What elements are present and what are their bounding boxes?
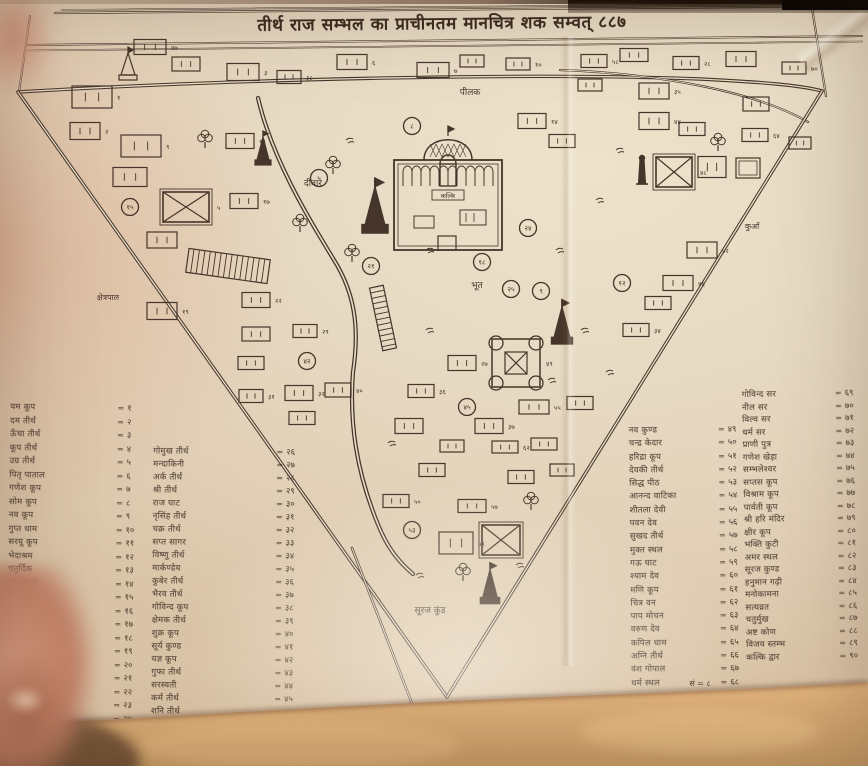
equals-sign: = [116,485,123,494]
equals-sign: = [719,544,726,553]
legend-row: शनि तीर्थ=४६ [151,705,301,719]
equals-sign: = [274,681,281,690]
tirtha-name: गणेश खेड़ा [743,450,833,463]
equals-sign: = [719,571,726,580]
tirtha-number: ३८ [285,603,302,614]
tirtha-name: धर्म स्थल [631,676,717,688]
tirtha-number: ८० [847,524,864,535]
tirtha-name: गऊ घाट [630,557,716,569]
equals-sign: = [275,564,282,573]
tirtha-name: गोमुख तीर्थ [153,445,273,457]
tirtha-name: सरस्वती [151,679,271,691]
tirtha-name: सत्यव्रत [745,600,835,613]
equals-sign: = [837,501,844,510]
tirtha-number: ८१ [847,537,864,548]
equals-sign: = [835,388,842,397]
tirtha-name: पितृ पाताल [9,469,113,481]
legend-row: गऊ घाट=५९ [630,556,746,571]
equals-sign: = [718,438,725,447]
legend-row: नृसिंह तीर्थ=३१ [153,510,303,524]
tirtha-name: चंदू तीर्थ [7,644,111,656]
tirtha-name: शीतला देवी [629,503,715,515]
tirtha-name: शुक्र कूप [152,627,272,639]
equals-sign: = [114,620,121,629]
tirtha-name: अर्क तीर्थ [153,471,273,483]
equals-sign: = [115,606,122,615]
equals-sign: = [275,577,282,586]
tirtha-number: ४४ [284,681,301,692]
equals-sign: = [116,498,123,507]
tirtha-number: १३ [125,565,142,576]
tirtha-name: नव कूप [9,509,113,521]
equals-sign: = [275,590,282,599]
tirtha-name: हरिद्रा कूप [629,450,715,462]
equals-sign: = [718,425,725,434]
equals-sign: = [718,451,725,460]
equals-sign: = [836,426,843,435]
equals-sign: = [275,668,282,677]
tirtha-number: ४१ [285,642,302,653]
tirtha-name: विश्राम कूप [743,487,833,500]
equals-sign: = [114,687,121,696]
tirtha-number: ६६ [730,649,747,660]
tirtha-number: १४ [125,578,142,589]
equals-sign: = [114,633,121,642]
tirtha-name: विष्णु तीर्थ [152,549,272,561]
tirtha-number: ३१ [286,512,303,523]
tirtha-number: २४ [123,713,140,724]
tirtha-number: १६ [124,605,141,616]
tirtha-number: ८९ [849,637,866,648]
tirtha-name: वंश गोपाल [631,663,717,675]
tirtha-number: ४६ [284,707,301,718]
tirtha-name: सुखद तीर्थ [630,530,716,542]
tirtha-name: गुप्त धाम [9,523,113,535]
equals-sign: = [838,588,845,597]
tirtha-number: २६ [286,447,303,458]
tirtha-name: श्री हरि मंदिर [744,512,834,525]
tirtha-name: गोविन्द कूप [152,601,272,613]
tirtha-name: कपिल धाम [631,636,717,648]
equals-sign: = [719,518,726,527]
tirtha-name: अवन्तिका [8,590,112,602]
equals-sign: = [115,579,122,588]
legend-row: चित्र वन=६२ [630,596,746,611]
legend-row: श्री तीर्थ=२९ [153,484,303,498]
tirtha-number: २९ [286,486,303,497]
tirtha-name: नील सर [742,400,832,413]
tirtha-name: उत्तम स्थल [7,658,111,670]
equals-sign: = [720,624,727,633]
tirtha-number: ३२ [286,525,303,536]
legend-row: नव कुण्ड=४९ [629,423,745,438]
tirtha-name: सूरज कुण्ड [745,562,835,575]
tirtha-name: नारद कूप [6,685,110,697]
tirtha-name: मुख तीर्थ [151,718,271,730]
tirtha-name: श्रद्धा धाम [6,712,110,724]
tirtha-number: ६१ [729,583,746,594]
tirtha-name: पवन देव [630,517,716,529]
tirtha-number: ८५ [848,587,865,598]
equals-sign: = [836,463,843,472]
legend-row: भारती तीर्थ=४८ [151,731,301,745]
tirtha-name: क्षीर कूप [744,525,834,538]
tirtha-name: गुफा तीर्थ [151,666,271,678]
equals-sign: = [839,601,846,610]
tirtha-number: ९० [849,649,866,660]
tirtha-number: ७७ [846,487,863,498]
equals-sign: = [718,464,725,473]
equals-sign: = [114,660,121,669]
tirtha-number: ७६ [846,474,863,485]
tirtha-name: कर्म तीर्थ [151,692,271,704]
equals-sign: = [117,417,124,426]
tirtha-number: ८८ [849,624,866,635]
legend-row: अग्नि तीर्थ=६६ [631,649,747,664]
equals-sign: = [838,563,845,572]
tirtha-name: वह कूप [6,671,110,683]
tirtha-name: सप्त सागर [152,536,272,548]
tirtha-name: विल्व सर [742,412,832,425]
equals-sign: = [276,460,283,469]
tirtha-number: ३४ [285,551,302,562]
equals-sign: = [276,499,283,508]
legend-row: यज्ञ कूप=४२ [151,653,301,667]
tirtha-number: २ [127,416,144,427]
legend-row: गुफा तीर्थ=४३ [151,666,301,680]
equals-sign: = [274,707,281,716]
tirtha-number: ७४ [846,449,863,460]
tirtha-number: ११ [125,538,142,549]
tirtha-number: ३३ [285,538,302,549]
legend-row: मन्दाकिनी=२७ [153,458,303,472]
equals-sign: = [718,478,725,487]
legend-row: पाप मोचन=६३ [631,610,747,625]
legend-row: वरुण देव=६४ [631,623,747,638]
tirtha-name: भद्रक तीर्थ [6,725,110,737]
equals-sign: = [113,728,120,737]
map-title: तीर्थ राज सम्भल का प्राचीनतम मानचित्र शक… [257,12,626,36]
legend-row: कल्कि द्वार=९० [746,649,866,664]
tirtha-name: यम कूप [10,401,114,413]
equals-sign: = [835,401,842,410]
tirtha-name: नव कुण्ड [629,424,715,436]
equals-sign: = [113,714,120,723]
equals-sign: = [114,647,121,656]
tirtha-number: ७८ [847,499,864,510]
equals-sign: = [719,558,726,567]
equals-sign: = [719,491,726,500]
tirtha-number: ३७ [285,590,302,601]
tirtha-number: ९ [126,511,143,522]
equals-sign: = [114,674,121,683]
tirtha-name: अष्ट कोण [746,625,836,638]
tirtha-name: सप्तस कूप [743,475,833,488]
tirtha-name: अशोक कूप [6,698,110,710]
equals-sign: = [720,597,727,606]
tirtha-number: ६९ [845,387,862,398]
equals-sign: = [274,720,281,729]
tirtha-name: धर्म सर [742,425,832,438]
legend-row: मुख तीर्थ=४७ [151,718,301,732]
equals-sign: = [276,473,283,482]
tirtha-name: भारती तीर्थ [151,731,271,743]
equals-sign: = [115,566,122,575]
legend-row: मणि कूप=६१ [630,583,746,598]
equals-sign: = [838,551,845,560]
tirtha-number: ४५ [284,694,301,705]
tirtha-number: ३५ [285,564,302,575]
tirtha-number: ७३ [845,437,862,448]
tirtha-number: ३९ [285,616,302,627]
equals-sign: = [275,629,282,638]
legend-row: शीतला देवी=५५ [629,503,745,518]
legend-row: वंश गोपाल=६७ [631,663,747,678]
equals-sign: = [276,486,283,495]
tirtha-name: पाप मोचन [631,610,717,622]
tirtha-number: १५ [125,592,142,603]
equals-sign: = [276,512,283,521]
tirtha-name: ऊँचा तीर्थ [10,428,114,440]
tirtha-name: उग्र तीर्थ [9,455,113,467]
tirtha-name: कुबेर तीर्थ [152,575,272,587]
tirtha-number: ४३ [284,668,301,679]
tirtha-number: ८४ [848,574,865,585]
tirtha-name: गणेश कूप [9,482,113,494]
equals-sign: = [719,504,726,513]
equals-sign: = [720,651,727,660]
tirtha-number: ५९ [729,556,746,567]
tirtha-name: नौवह फल [7,631,111,643]
photo-of-old-map: ४७१३३८६७१०५८२८७०३५२९१३५१७१५२२१९क्षेत्रपा… [0,0,868,766]
tirtha-name: आनन्द वाटिका [629,490,715,502]
tirtha-name: वरुण देव [631,623,717,635]
tirtha-name: क्षेमक तीर्थ [152,614,272,626]
tirtha-number: ६८ [730,676,747,687]
tirtha-number: ६ [126,470,143,481]
tirtha-name: भेदाश्रम [8,550,112,562]
tirtha-number: ४० [285,629,302,640]
tirtha-name: सम्भलेश्वर [743,462,833,475]
equals-sign: = [118,404,125,413]
tirtha-number: २५ [123,727,140,738]
legend-row: मार्कण्डेय=३५ [152,562,302,576]
equals-sign: = [276,538,283,547]
legend-row: धर्म स्थल=६८ [631,676,747,691]
tirtha-name: नई जागर [8,577,112,589]
equals-sign: = [836,451,843,460]
legend-column-3: नव कुण्ड=४९चन्द्र केदार=५०हरिद्रा कूप=५१… [629,423,748,690]
tirtha-number: ६२ [729,596,746,607]
tirtha-number: ४ [127,443,144,454]
tirtha-number: १२ [125,551,142,562]
equals-sign: = [836,476,843,485]
tirtha-number: ३० [286,499,303,510]
legend-row: मुक्त स्थल=५८ [630,543,746,558]
tirtha-name: अमृत कूप [7,617,111,629]
equals-sign: = [277,447,284,456]
equals-sign: = [721,677,728,686]
equals-sign: = [837,526,844,535]
tirtha-number: ४७ [284,720,301,731]
tirtha-number: ४८ [284,733,301,744]
tirtha-number: ७९ [847,512,864,523]
tirtha-number: २० [124,659,141,670]
tirtha-number: ६४ [730,623,747,634]
tirtha-name: हनुमान गढ़ी [745,575,835,588]
tirtha-name: राज घाट [153,497,273,509]
equals-sign: = [117,458,124,467]
equals-sign: = [836,438,843,447]
legend-row: कर्म तीर्थ=४५ [151,692,301,706]
tirtha-number: १७ [124,619,141,630]
tirtha-number: ८ [126,497,143,508]
tirtha-name: नृसिंह तीर्थ [153,510,273,522]
tirtha-name: श्याम देव [630,570,716,582]
tirtha-number: ८७ [849,612,866,623]
tirtha-number: ३६ [285,577,302,588]
tirtha-name: कूप तीर्थ [10,442,114,454]
equals-sign: = [839,613,846,622]
legend-row: सप्त सागर=३३ [152,536,302,550]
equals-sign: = [720,664,727,673]
tirtha-number: २३ [123,700,140,711]
equals-sign: = [839,651,846,660]
tirtha-number: ८६ [848,599,865,610]
equals-sign: = [720,611,727,620]
tirtha-name: चन्द्र केदार [629,437,715,449]
tirtha-number: २७ [286,460,303,471]
equals-sign: = [835,413,842,422]
equals-sign: = [276,525,283,534]
legend-row: विष्णु तीर्थ=३४ [152,549,302,563]
tirtha-name: चतुर्दिक [8,563,112,575]
tirtha-number: १ [127,403,144,414]
legend-row: गोमुख तीर्थ=२६ [153,445,303,459]
tirtha-number: २२ [123,686,140,697]
tirtha-name: सिद्ध पीठ [629,477,715,489]
legend-row: सिद्ध पीठ=५३ [629,477,745,492]
tirtha-number: ७१ [845,412,862,423]
tirtha-name: मन्दाकिनी [153,458,273,470]
tirtha-name: मार्कण्डेय [152,562,272,574]
equals-sign: = [720,637,727,646]
equals-sign: = [117,431,124,440]
equals-sign: = [116,512,123,521]
equals-sign: = [113,701,120,710]
tirtha-number: ६३ [730,610,747,621]
equals-sign: = [116,525,123,534]
legend-row: सूर्य कुण्ड=४१ [151,640,301,654]
tirtha-number: ६७ [730,663,747,674]
tirtha-number: ६५ [730,636,747,647]
legend-row: पवन देव=५६ [630,516,746,531]
equals-sign: = [274,694,281,703]
equals-sign: = [839,638,846,647]
tirtha-name: सोम कूप [9,496,113,508]
tirtha-name: देवकी तीर्थ [629,464,715,476]
tirtha-number: १८ [124,632,141,643]
tirtha-name: चित्र वन [630,597,716,609]
legend-row: कुबेर तीर्थ=३६ [152,575,302,589]
tirtha-number: १९ [124,646,141,657]
tirtha-name: अमर स्थल [744,550,834,563]
equals-sign: = [837,513,844,522]
legend-row: भैरव तीर्थ=३७ [152,588,302,602]
equals-sign: = [275,655,282,664]
legend-column-2: गोमुख तीर्थ=२६मन्दाकिनी=२७अर्क तीर्थ=२८श… [151,445,304,745]
legend-row: अर्क तीर्थ=२८ [153,471,303,485]
legend-row: सुखद तीर्थ=५७ [630,530,746,545]
tirtha-name: मनोकामना [745,587,835,600]
tirtha-number: ६० [729,570,746,581]
legend-row: हरिद्रा कूप=५१ [629,450,745,465]
equals-sign: = [274,733,281,742]
legend-row: कपिल धाम=६५ [631,636,747,651]
legend-row: क्षेमक तीर्थ=३९ [152,614,302,628]
tirtha-name: कल्कि द्वार [746,650,836,663]
equals-sign: = [838,576,845,585]
equals-sign: = [115,552,122,561]
equals-sign: = [275,642,282,651]
legend-row: चक्र तीर्थ=३२ [153,523,303,537]
legend-row: सरस्वती=४४ [151,679,301,693]
legend-row: आनन्द वाटिका=५४ [629,490,745,505]
tirtha-number: ४२ [284,655,301,666]
tirtha-name: सरयू कूप [8,536,112,548]
tirtha-number: २१ [123,673,140,684]
legend-row: शुक्र कूप=४० [152,627,302,641]
equals-sign: = [117,444,124,453]
legend-row: भद्रक तीर्थ=२५ [6,725,140,740]
tirtha-name: यज्ञ कूप [151,653,271,665]
tirtha-number: ३ [127,430,144,441]
tirtha-name: पार्वती कूप [744,500,834,513]
equals-sign: = [117,471,124,480]
tirtha-number: २८ [286,473,303,484]
legend-row: गोविन्द कूप=३८ [152,601,302,615]
tirtha-name: दम तीर्थ [10,415,114,427]
tirtha-number: ७२ [845,424,862,435]
tirtha-name: मणि कूप [630,583,716,595]
tirtha-name: श्री तीर्थ [153,484,273,496]
tirtha-name: मुक्त स्थल [630,543,716,555]
legend-row: श्याम देव=६० [630,570,746,585]
tirtha-name: प्राणी पुत्र [742,437,832,450]
legend-column-4: गोविन्द सर=६९नील सर=७०विल्व सर=७१धर्म सर… [742,387,867,664]
equals-sign: = [276,551,283,560]
equals-sign: = [275,603,282,612]
equals-sign: = [838,538,845,547]
tirtha-name: गोविन्द सर [742,387,832,400]
tirtha-number: ७५ [846,462,863,473]
equals-sign: = [115,593,122,602]
tirtha-name: चतुर्मुख [746,612,836,625]
tirtha-number: ७० [845,399,862,410]
tirtha-name: विजय स्तम्भ [746,637,836,650]
equals-sign: = [719,531,726,540]
legend-row: देवकी तीर्थ=५२ [629,463,745,478]
equals-sign: = [839,626,846,635]
tirtha-name: अग्नि तीर्थ [631,650,717,662]
equals-sign: = [116,539,123,548]
tirtha-number: ७ [126,484,143,495]
equals-sign: = [837,488,844,497]
tirtha-name: शनि तीर्थ [151,705,271,717]
equals-sign: = [275,616,282,625]
tirtha-name: भैरव तीर्थ [152,588,272,600]
legend-column-1: यम कूप=१दम तीर्थ=२ऊँचा तीर्थ=३कूप तीर्थ=… [6,401,145,740]
